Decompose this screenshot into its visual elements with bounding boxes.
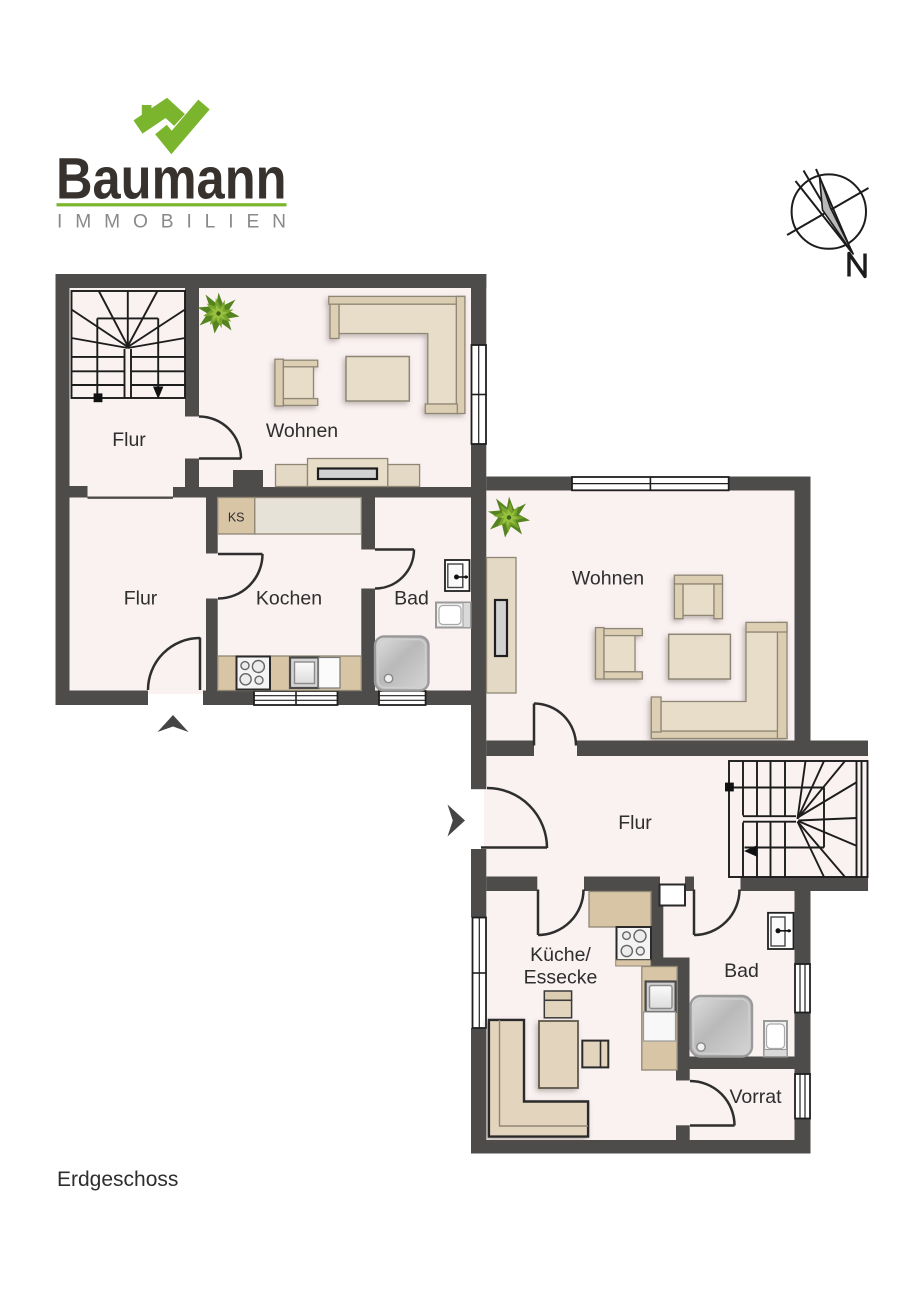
svg-text:KS: KS: [228, 511, 245, 525]
svg-text:Bad: Bad: [394, 588, 429, 610]
svg-text:Küche/: Küche/: [530, 944, 591, 966]
svg-text:Wohnen: Wohnen: [572, 568, 644, 590]
svg-text:Baumann: Baumann: [56, 147, 287, 212]
svg-text:Vorrat: Vorrat: [729, 1086, 782, 1108]
svg-text:Flur: Flur: [124, 588, 158, 610]
svg-text:Kochen: Kochen: [256, 588, 322, 610]
svg-text:Wohnen: Wohnen: [266, 420, 338, 442]
svg-text:Erdgeschoss: Erdgeschoss: [57, 1168, 178, 1191]
svg-text:Flur: Flur: [112, 429, 146, 451]
svg-text:Bad: Bad: [724, 960, 759, 982]
svg-text:Flur: Flur: [618, 812, 652, 834]
svg-text:Essecke: Essecke: [524, 967, 598, 989]
